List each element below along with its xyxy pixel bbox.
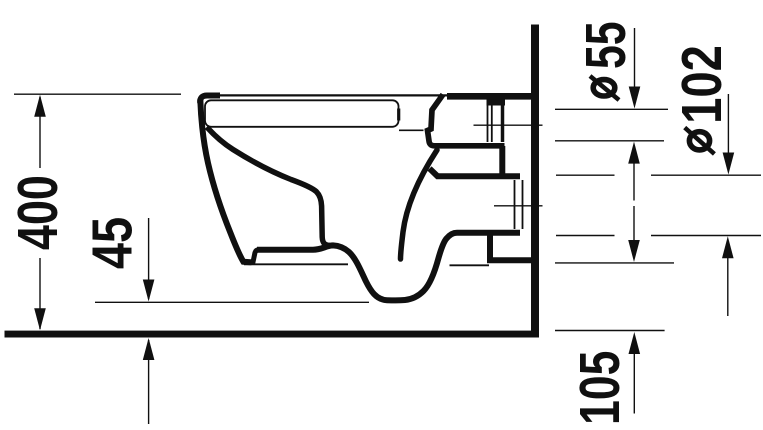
svg-text:55: 55 <box>573 21 637 69</box>
svg-text:45: 45 <box>81 217 144 269</box>
svg-text:105: 105 <box>568 351 632 425</box>
svg-text:102: 102 <box>671 45 734 124</box>
svg-text:400: 400 <box>6 175 69 250</box>
